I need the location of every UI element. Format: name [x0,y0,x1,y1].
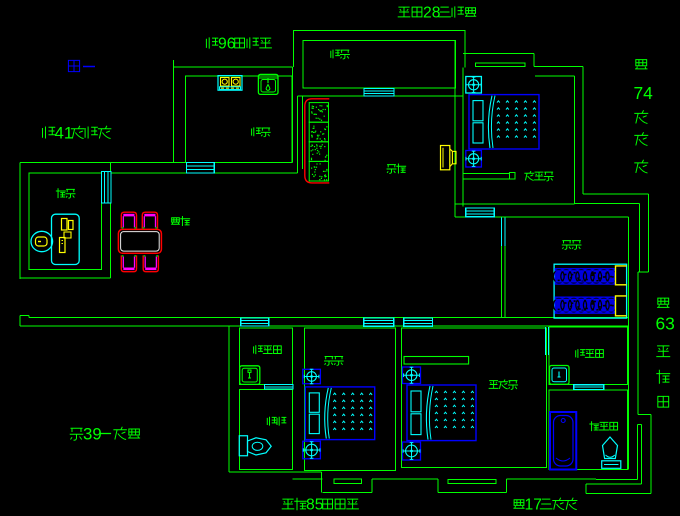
svg-text:41: 41 [55,124,74,143]
svg-text:39: 39 [83,425,102,444]
svg-text:96: 96 [218,36,236,53]
svg-text:85: 85 [306,497,324,514]
svg-text:28: 28 [423,5,441,22]
svg-text:74: 74 [634,83,654,103]
svg-text:17: 17 [525,497,542,514]
svg-text:63: 63 [656,313,675,333]
